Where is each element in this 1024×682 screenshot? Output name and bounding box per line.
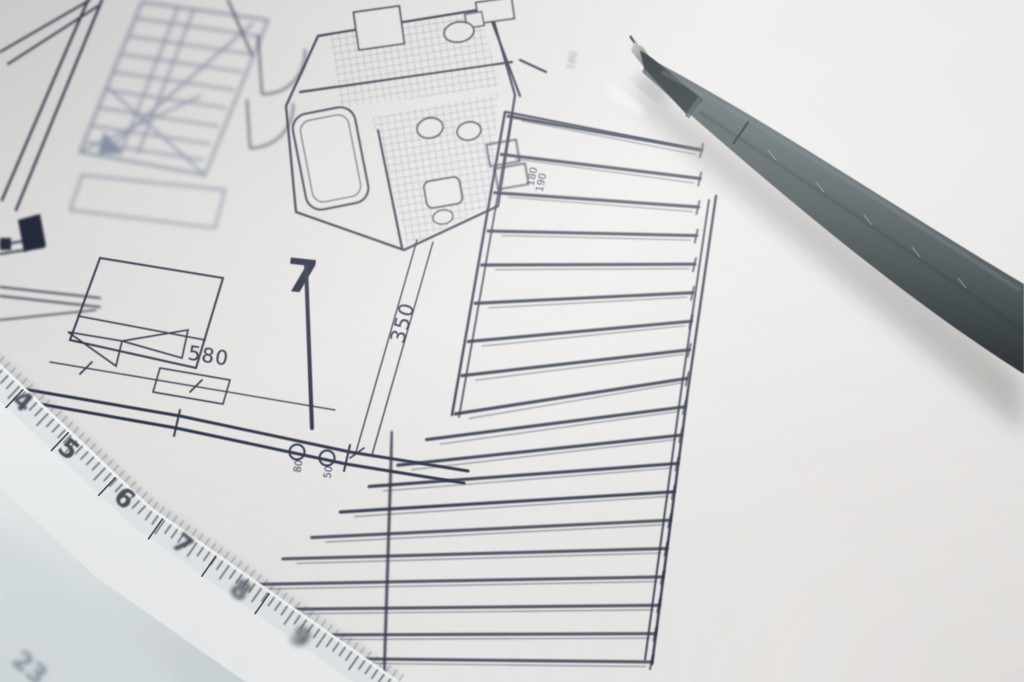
deck-board	[312, 520, 671, 537]
deck-board	[254, 577, 663, 584]
room-number: 7	[283, 248, 320, 305]
left-walls	[0, 0, 102, 320]
deck-board	[488, 231, 697, 236]
bathtub	[290, 105, 370, 212]
drain-label-50: 50	[322, 465, 335, 479]
deck-board	[455, 378, 688, 414]
dimension-350: 350	[385, 300, 419, 346]
dimension-580: 580	[186, 340, 230, 370]
dimension-180-top: 180	[566, 50, 581, 71]
drain-label-80: 80	[292, 459, 305, 473]
bathroom-tiles-lower	[372, 92, 498, 246]
deck-board	[468, 321, 691, 341]
deck-board	[475, 293, 693, 304]
deck-board	[495, 193, 699, 207]
photo-scene: 7 580 350 80 50	[0, 0, 1024, 682]
blueprint-photo: 7 580 350 80 50	[0, 0, 1024, 682]
deck-board	[462, 350, 690, 376]
deck-board	[398, 435, 682, 465]
deck-board	[482, 264, 695, 265]
staircase	[70, 2, 268, 228]
wall-poche	[18, 214, 46, 252]
washing-machine	[354, 6, 405, 50]
pen-barrel	[642, 58, 1024, 374]
drain-symbols: 80 50	[290, 445, 336, 480]
bathroom	[286, 0, 546, 250]
deck-board	[283, 549, 667, 559]
